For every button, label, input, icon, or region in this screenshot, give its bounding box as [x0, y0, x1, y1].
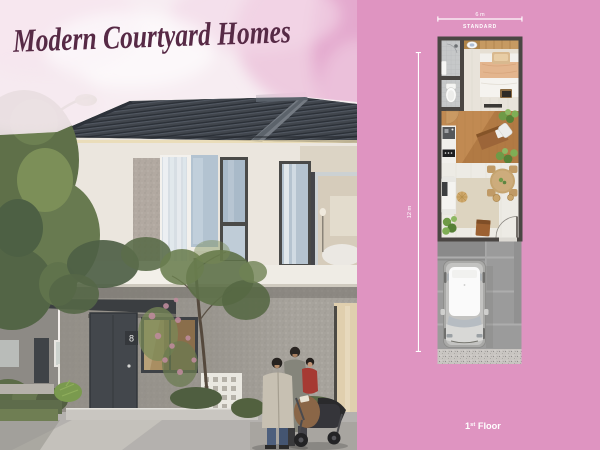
svg-text:6 m: 6 m	[475, 12, 485, 18]
svg-text:8: 8	[129, 334, 134, 344]
svg-text:STANDARD: STANDARD	[463, 24, 497, 30]
svg-text:12 m: 12 m	[407, 205, 413, 218]
